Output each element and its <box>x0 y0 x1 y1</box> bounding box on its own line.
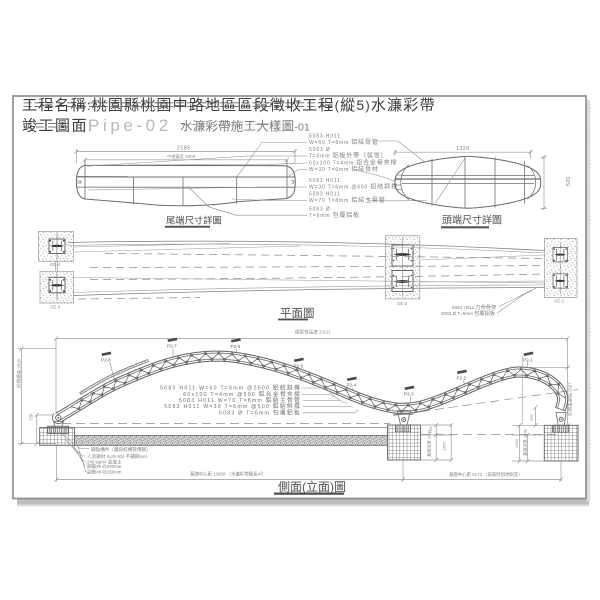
svg-text:頭端尺寸詳圖: 頭端尺寸詳圖 <box>442 214 502 227</box>
svg-text:P2-1: P2-1 <box>523 358 533 363</box>
svg-text:520: 520 <box>566 176 572 186</box>
svg-text:GE-2: GE-2 <box>397 301 408 306</box>
svg-text:竣工圖面:: 竣工圖面: <box>22 118 93 135</box>
svg-text:中樘寬度 2009: 中樘寬度 2009 <box>167 153 196 160</box>
svg-text:5083 Ø: 5083 Ø <box>309 207 331 213</box>
svg-text:基礎深度 1000: 基礎深度 1000 <box>426 429 433 457</box>
svg-text:5083 H011 W=30 T=6mm @600 鋁結斜撐: 5083 H011 W=30 T=6mm @600 鋁結斜撐 <box>164 402 301 410</box>
svg-text:2185: 2185 <box>177 146 191 152</box>
svg-text:GE-3: GE-3 <box>50 305 61 310</box>
svg-text:5083 H011: 5083 H011 <box>309 134 341 140</box>
svg-text:副筋#6 @150mm: 副筋#6 @150mm <box>87 469 122 476</box>
svg-text:250: 250 <box>529 414 534 421</box>
svg-text:P2-6: P2-6 <box>231 344 241 349</box>
svg-text:P2-4: P2-4 <box>347 383 357 388</box>
svg-text:5083 Ø T=6mm 包覆鋁板: 5083 Ø T=6mm 包覆鋁板 <box>219 408 301 416</box>
svg-text:基礎中心距 6172 （安裝時因地制宜）: 基礎中心距 6172 （安裝時因地制宜） <box>449 471 523 478</box>
svg-text:側面(立面)圖: 側面(立面)圖 <box>278 479 346 494</box>
svg-text:P2-5: P2-5 <box>294 364 304 369</box>
svg-text:60x100 T=4mm @500 鋁合金骨夾樑: 60x100 T=4mm @500 鋁合金骨夾樑 <box>183 390 301 398</box>
svg-text:鋼點構件（鍍鋅結構管用鋼）: 鋼點構件（鍍鋅結構管用鋼） <box>91 446 151 453</box>
svg-text:P2-8: P2-8 <box>101 358 111 363</box>
svg-text:基礎深度 1000: 基礎深度 1000 <box>522 428 529 456</box>
svg-text:60x100 T=4mm 鋁合金骨夾樑: 60x100 T=4mm 鋁合金骨夾樑 <box>309 159 397 167</box>
svg-text:5083 H011 W=60 T=6mm @2500 鋁結斜: 5083 H011 W=60 T=6mm @2500 鋁結斜撐 <box>160 384 301 392</box>
svg-text:GE-4: GE-4 <box>50 262 61 267</box>
svg-text:W=60 T=8mm 鋁結骨管: W=60 T=8mm 鋁結骨管 <box>309 138 379 146</box>
svg-text:P2-3: P2-3 <box>404 392 414 397</box>
svg-text:T=6mm 鋁板外帶〔弧彎〕: T=6mm 鋁板外帶〔弧彎〕 <box>309 152 387 160</box>
svg-text:彩帶最高點 2587: 彩帶最高點 2587 <box>567 382 574 416</box>
svg-text:P2-7: P2-7 <box>167 344 177 349</box>
svg-text:5083 H011: 5083 H011 <box>309 192 341 198</box>
svg-text:5083 Ø: 5083 Ø <box>309 147 331 153</box>
svg-text:5083 Ø T=6mm 包覆鋁板: 5083 Ø T=6mm 包覆鋁板 <box>441 309 496 317</box>
svg-text:W=30 T=6mm @600 鋁結斜撐: W=30 T=6mm @600 鋁結斜撐 <box>309 183 398 191</box>
svg-text:Pipe-02: Pipe-02 <box>88 116 172 135</box>
svg-text:W=30 T=6mm 鋁結骨材: W=30 T=6mm 鋁結骨材 <box>309 165 379 173</box>
svg-text:基礎中心距 13658 （水濂彩帶總長㎡）: 基礎中心距 13658 （水濂彩帶總長㎡） <box>190 471 266 478</box>
svg-text:平面圖: 平面圖 <box>280 307 315 320</box>
svg-text:GE-1: GE-1 <box>554 299 565 304</box>
svg-text:750: 750 <box>29 413 34 421</box>
svg-text:總型性長度 20121: 總型性長度 20121 <box>295 329 331 336</box>
svg-text:W=70 T=8mm 鋁結主骨管: W=70 T=8mm 鋁結主骨管 <box>309 196 386 204</box>
svg-text:5083 H011 W=70 T=8mm 鋁結主骨管: 5083 H011 W=70 T=8mm 鋁結主骨管 <box>179 396 301 404</box>
svg-text:工程名稱:桃園縣桃園中路地區區段徵收工程(縱5)水濂彩帶: 工程名稱:桃園縣桃園中路地區區段徵收工程(縱5)水濂彩帶 <box>22 97 436 114</box>
svg-text:彩帶總高 2908: 彩帶總高 2908 <box>16 358 23 388</box>
svg-text:1350: 1350 <box>442 441 447 451</box>
svg-text:1320: 1320 <box>456 146 470 152</box>
svg-text:1350: 1350 <box>514 438 519 448</box>
svg-text:5083 H011: 5083 H011 <box>309 178 341 184</box>
svg-text:5083 H011 力骨骨架: 5083 H011 力骨骨架 <box>452 303 496 311</box>
svg-text:T=6mm 包覆鋁板: T=6mm 包覆鋁板 <box>309 211 360 219</box>
svg-text:尾端尺寸詳圖: 尾端尺寸詳圖 <box>166 215 222 226</box>
svg-text:P2-2: P2-2 <box>457 376 467 381</box>
svg-text:水濂彩帶施工大樣圖-01: 水濂彩帶施工大樣圖-01 <box>180 119 310 134</box>
